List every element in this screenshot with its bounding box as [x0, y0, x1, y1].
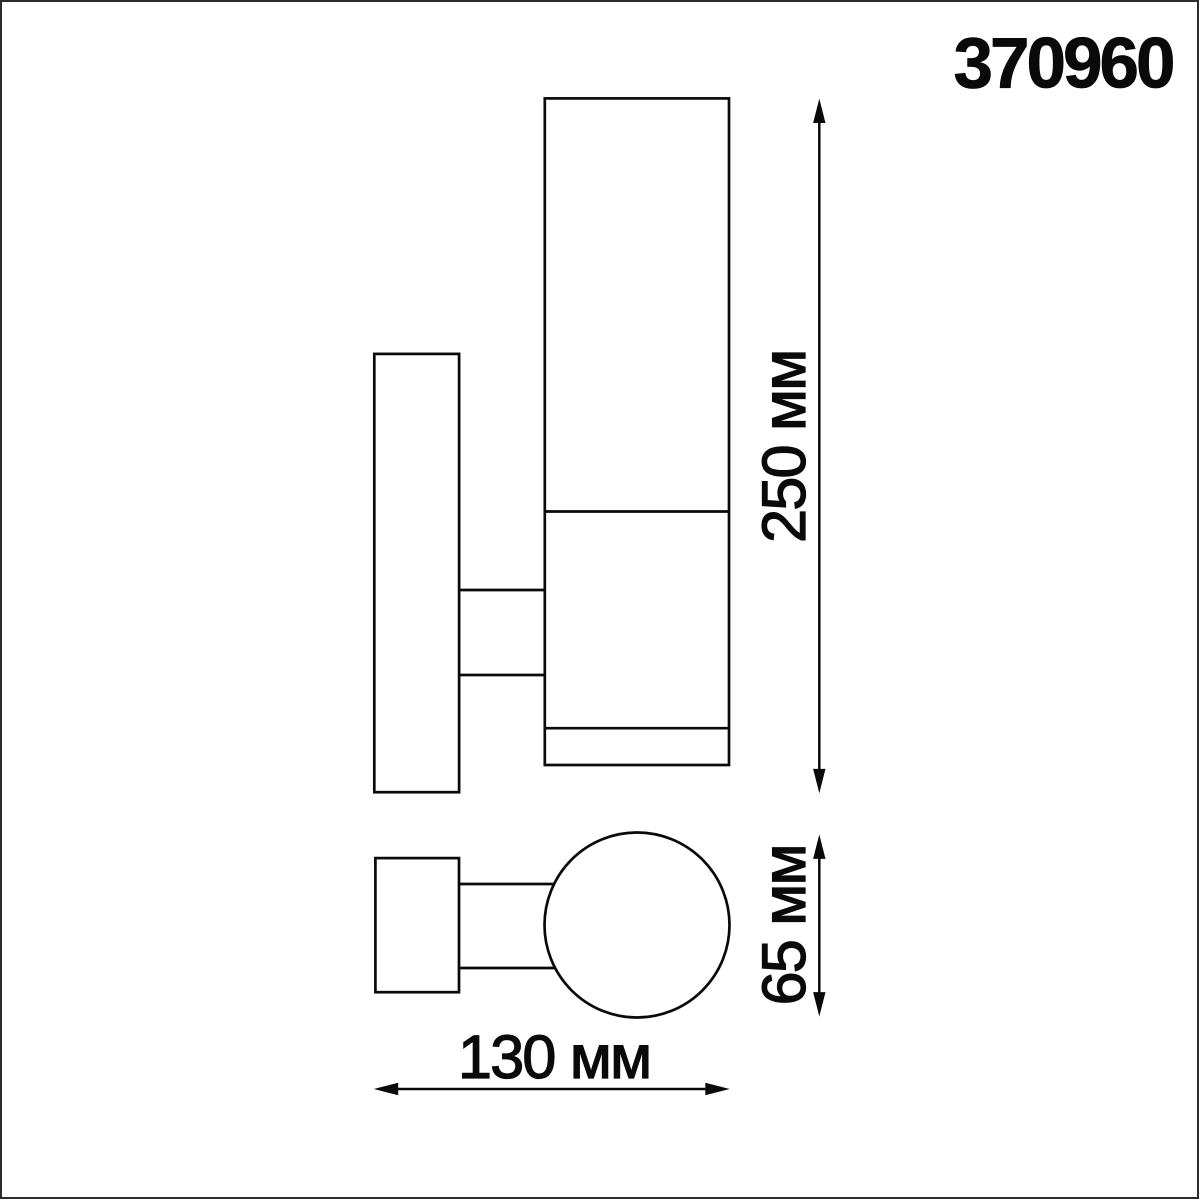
- svg-text:250 мм: 250 мм: [750, 350, 818, 542]
- svg-text:130 мм: 130 мм: [458, 1023, 650, 1091]
- svg-text:65 мм: 65 мм: [750, 845, 818, 1005]
- svg-text:370960: 370960: [954, 25, 1173, 104]
